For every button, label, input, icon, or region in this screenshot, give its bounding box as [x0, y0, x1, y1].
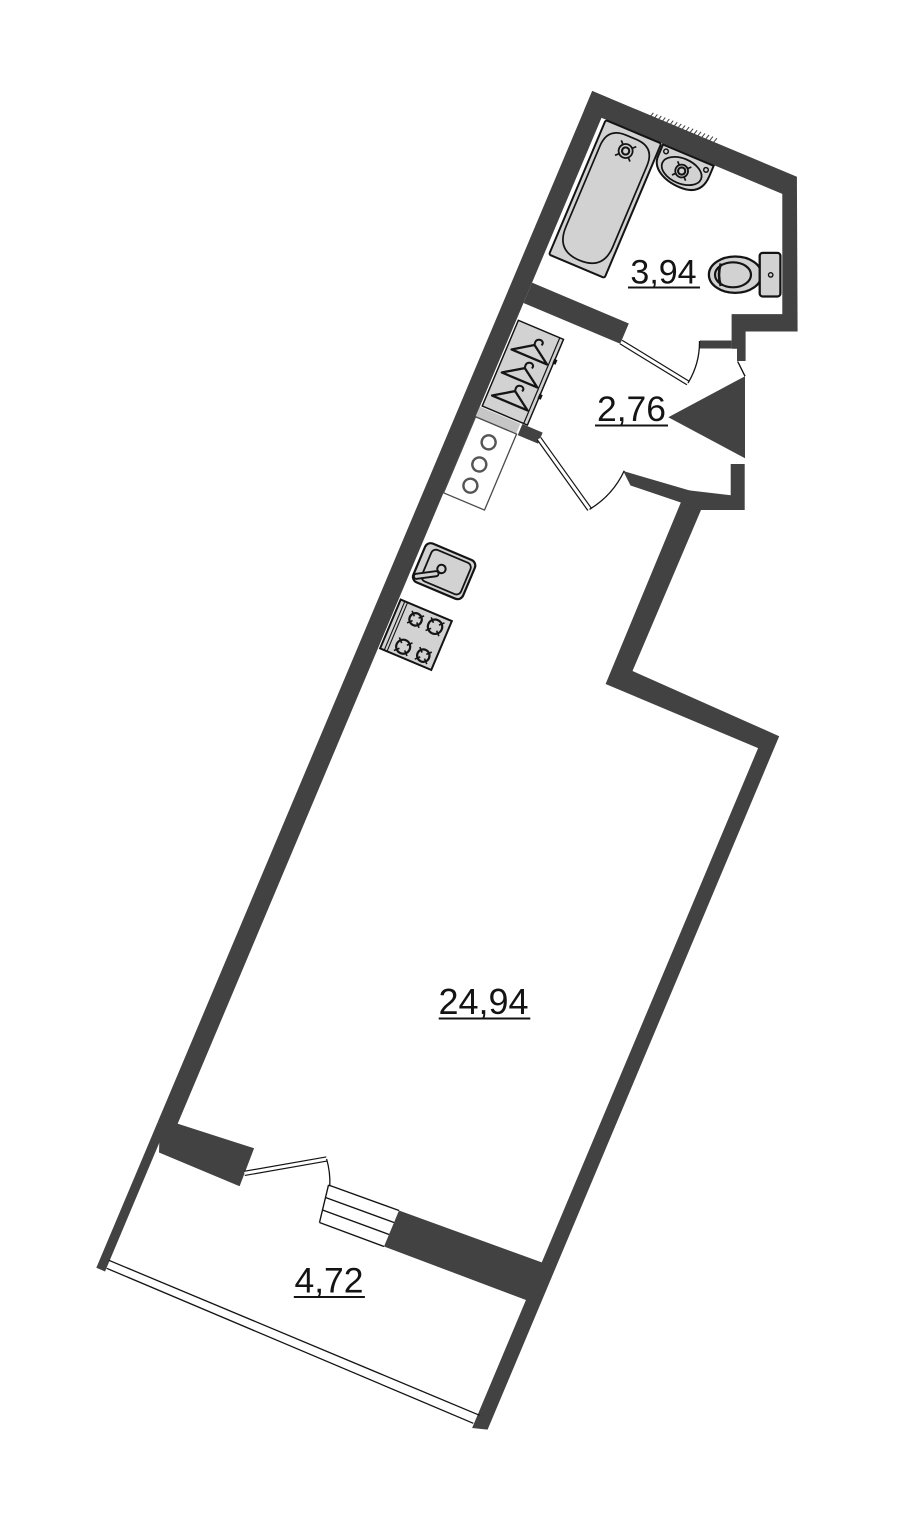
svg-text:24,94: 24,94: [438, 981, 528, 1022]
svg-text:3,94: 3,94: [630, 253, 696, 291]
svg-text:4,72: 4,72: [294, 1260, 363, 1300]
svg-text:2,76: 2,76: [597, 389, 666, 429]
